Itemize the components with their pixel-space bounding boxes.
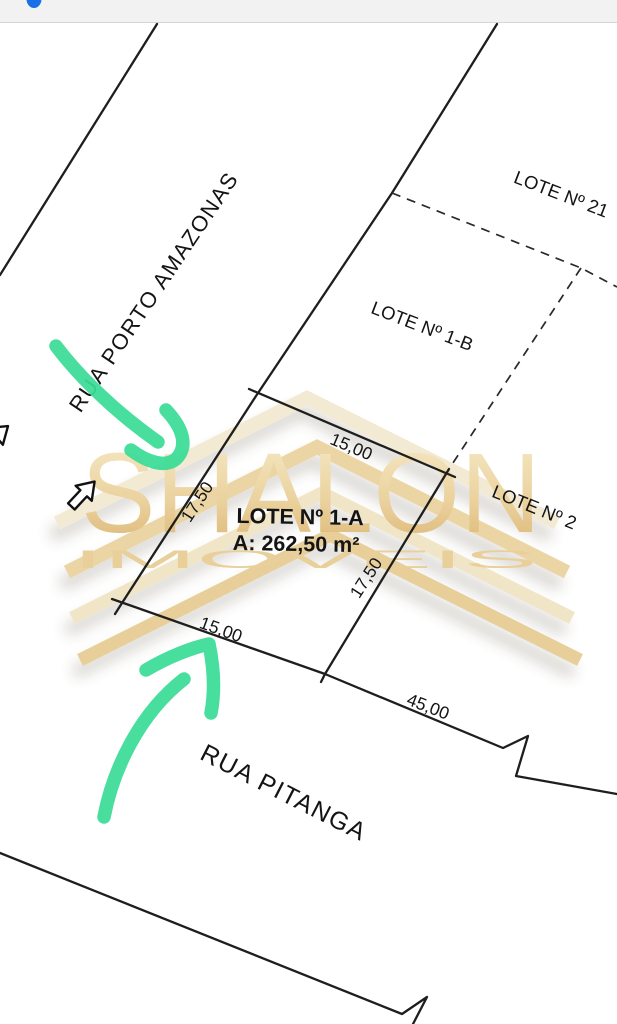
lot-label-21: LOTE Nº 21	[511, 166, 611, 221]
survey-plan-drawing: SHALON IMÓVEIS RUA PORTO AMAZONAS	[0, 0, 617, 1024]
street-line-pitanga-north	[112, 599, 617, 794]
lot-label-1a: LOTE Nº 1-A	[236, 504, 364, 530]
screenshot-root: SHALON IMÓVEIS RUA PORTO AMAZONAS	[0, 0, 617, 1024]
notification-dot-icon	[27, 0, 42, 8]
dimension-label-street-frontage: 45,00	[404, 689, 452, 723]
green-arrow-lower-shaft	[104, 679, 184, 817]
street-line-porto-amazonas-west	[0, 24, 157, 275]
lot-label-1b: LOTE Nº 1-B	[368, 297, 476, 355]
street-label-rua-pitanga: RUA PITANGA	[196, 739, 372, 847]
lot-1a-area-label: A: 262,50 m²	[233, 531, 360, 557]
street-line-pitanga-south	[0, 853, 427, 1024]
cursor-arrow-icon-clipped	[0, 418, 15, 457]
